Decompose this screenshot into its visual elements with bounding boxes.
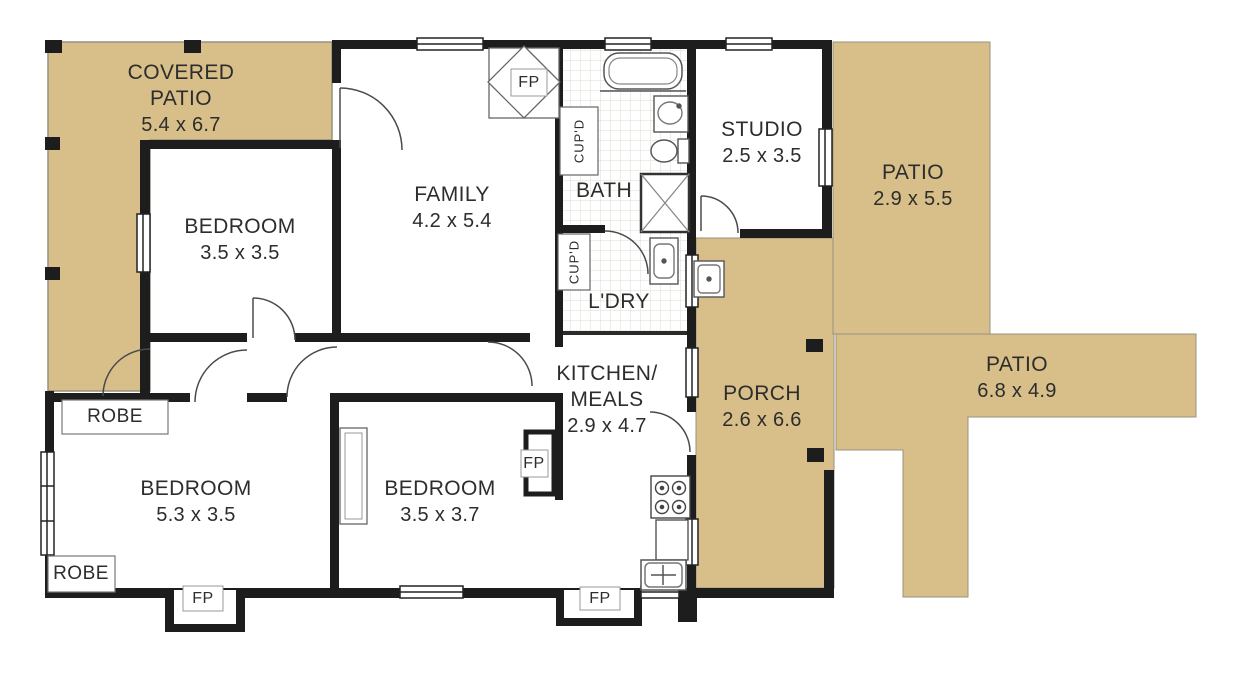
room-label-bath: BATH	[576, 178, 632, 204]
robe-label-bottom: ROBE	[53, 563, 109, 585]
robe-label-top: ROBE	[87, 406, 143, 428]
room-name: BATH	[576, 178, 632, 204]
room-dims: 2.5 x 3.5	[721, 143, 803, 169]
door-family-patio	[340, 88, 402, 150]
window-studio-top	[726, 38, 772, 50]
window-bedroom-top-left	[137, 214, 150, 272]
fp-label-family: FP	[518, 74, 539, 92]
room-dims: 2.6 x 6.6	[722, 407, 801, 433]
room-dims: 2.9 x 4.7	[537, 413, 677, 439]
door-bedroom-mid	[287, 347, 337, 397]
vanity-sink	[654, 96, 688, 132]
room-label-family: FAMILY 4.2 x 5.4	[412, 182, 491, 234]
door-family-kitchen	[488, 342, 532, 386]
room-label-ldry: L'DRY	[588, 289, 650, 315]
room-label-bedroom-left: BEDROOM 5.3 x 3.5	[140, 476, 251, 528]
door-bedroom-left	[195, 350, 247, 402]
room-label-studio: STUDIO 2.5 x 3.5	[721, 117, 803, 169]
window-bedroom-mid-bottom	[400, 586, 463, 598]
bathtub	[600, 53, 686, 91]
floor-plan: COVERED PATIO 5.4 x 6.7 BEDROOM 3.5 x 3.…	[0, 0, 1239, 675]
room-label-patio-far: PATIO 6.8 x 4.9	[977, 352, 1056, 404]
door-studio	[701, 196, 738, 233]
room-label-bedroom-top: BEDROOM 3.5 x 3.5	[184, 214, 295, 266]
laundry-tub	[650, 238, 678, 284]
room-name: PORCH	[722, 381, 801, 407]
room-dims: 3.5 x 3.7	[384, 502, 495, 528]
room-name: PATIO	[873, 160, 952, 186]
room-name: BEDROOM	[184, 214, 295, 240]
water-heater	[694, 261, 724, 297]
stove	[651, 476, 690, 518]
room-label-porch: PORCH 2.6 x 6.6	[722, 381, 801, 433]
room-label-covered-patio: COVERED PATIO 5.4 x 6.7	[106, 60, 256, 138]
window-left-wall	[41, 452, 54, 555]
fp-label-bottom-left: FP	[192, 590, 213, 608]
room-name: FAMILY	[412, 182, 491, 208]
door-bedroom-top	[253, 298, 295, 340]
cupd-label-ldry: CUP'D	[567, 240, 582, 284]
window-family-top	[417, 38, 483, 50]
room-dims: 2.9 x 5.5	[873, 186, 952, 212]
window-kitchen-right-upper	[686, 348, 698, 397]
fp-label-kitchen: FP	[589, 590, 610, 608]
room-name: KITCHEN/ MEALS	[537, 361, 677, 413]
wardrobe-bedroom-mid	[340, 428, 367, 524]
room-name: BEDROOM	[384, 476, 495, 502]
room-name: BEDROOM	[140, 476, 251, 502]
room-dims: 4.2 x 5.4	[412, 208, 491, 234]
room-name: PATIO	[977, 352, 1056, 378]
room-label-patio-right: PATIO 2.9 x 5.5	[873, 160, 952, 212]
kitchen-counter	[656, 520, 688, 560]
cupd-label-bath: CUP'D	[572, 119, 587, 163]
window-bath-top	[605, 38, 651, 50]
room-label-bedroom-mid: BEDROOM 3.5 x 3.7	[384, 476, 495, 528]
room-dims: 5.4 x 6.7	[106, 112, 256, 138]
room-name: L'DRY	[588, 289, 650, 315]
kitchen-sink	[641, 560, 686, 590]
shower	[641, 174, 689, 232]
window-studio-right	[819, 129, 832, 186]
room-dims: 3.5 x 3.5	[184, 240, 295, 266]
room-dims: 6.8 x 4.9	[977, 378, 1056, 404]
room-dims: 5.3 x 3.5	[140, 502, 251, 528]
toilet	[651, 139, 689, 163]
room-label-kitchen: KITCHEN/ MEALS 2.9 x 4.7	[537, 361, 677, 439]
fp-label-bedroom: FP	[523, 455, 544, 473]
room-name: STUDIO	[721, 117, 803, 143]
room-name: COVERED PATIO	[106, 60, 256, 112]
